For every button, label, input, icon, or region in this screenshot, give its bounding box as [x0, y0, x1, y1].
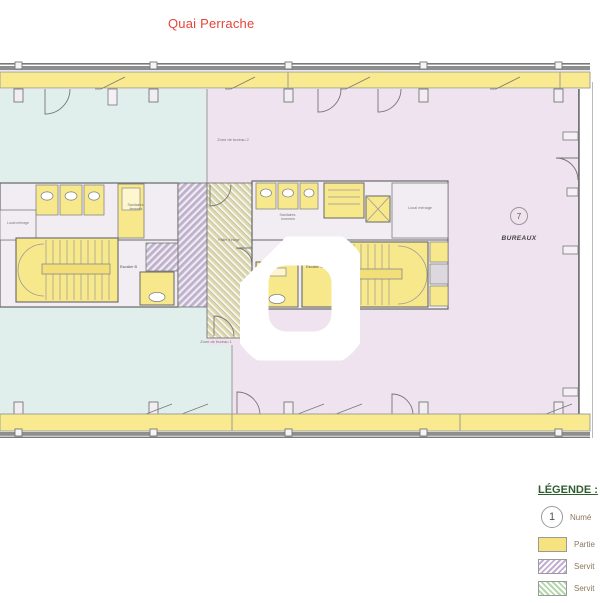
circled-number-symbol: 1 — [541, 506, 563, 528]
violet-hatch-swatch — [538, 559, 567, 574]
core-left-block — [0, 183, 178, 307]
wc-stalls-left — [36, 185, 104, 215]
wc-stalls-right — [256, 183, 318, 209]
sanitaires-hommes-label: Sanitaires hommes — [280, 213, 297, 221]
zone2-label: Zone de bureau 2 — [217, 137, 249, 142]
legend-item-number: 1 Numé — [538, 506, 600, 528]
elevator-left — [140, 272, 174, 305]
yellow-swatch — [538, 537, 567, 552]
side-shafts — [430, 242, 448, 306]
legend-title: LÉGENDE : — [538, 484, 600, 496]
local-menage-right-label: Local ménage — [408, 206, 432, 210]
stair-escalier-b — [16, 238, 118, 302]
sanitaires-femmes-label: Sanitaires femmes — [128, 203, 145, 211]
local-menage-left-room — [0, 210, 36, 240]
legend: LÉGENDE : 1 Numé Partie Servit Servit — [538, 484, 600, 603]
green-hatch-swatch — [538, 581, 567, 596]
servitude-hatch-small — [146, 243, 178, 271]
local-menage-right-room — [392, 183, 448, 238]
bureaux-label: BUREAUX — [502, 235, 537, 242]
legend-item-label: Servit — [574, 584, 594, 593]
legend-item-label: Servit — [574, 562, 594, 571]
boundary-line-right — [592, 82, 593, 438]
facade-top — [0, 62, 590, 88]
legend-item-label: Numé — [570, 513, 591, 522]
legend-item-parties-communes: Partie — [538, 537, 600, 552]
facade-bottom — [0, 414, 590, 438]
legend-item-label: Partie — [574, 540, 595, 549]
servitude-strip — [178, 183, 207, 307]
zone1-label: Zone de bureau 1 — [200, 339, 232, 344]
local-menage-left-label: Local ménage — [7, 221, 29, 225]
legend-item-servitude-green: Servit — [538, 581, 600, 596]
escalier-b-label: Escalier B — [120, 265, 138, 269]
floor-plan: Zone de bureau 2 Zone de bureau 1 Sanita… — [0, 0, 600, 600]
bureaux-number: 7 — [517, 212, 522, 221]
palier-label: Palier d'étage — [218, 238, 239, 242]
legend-item-servitude-violet: Servit — [538, 559, 600, 574]
